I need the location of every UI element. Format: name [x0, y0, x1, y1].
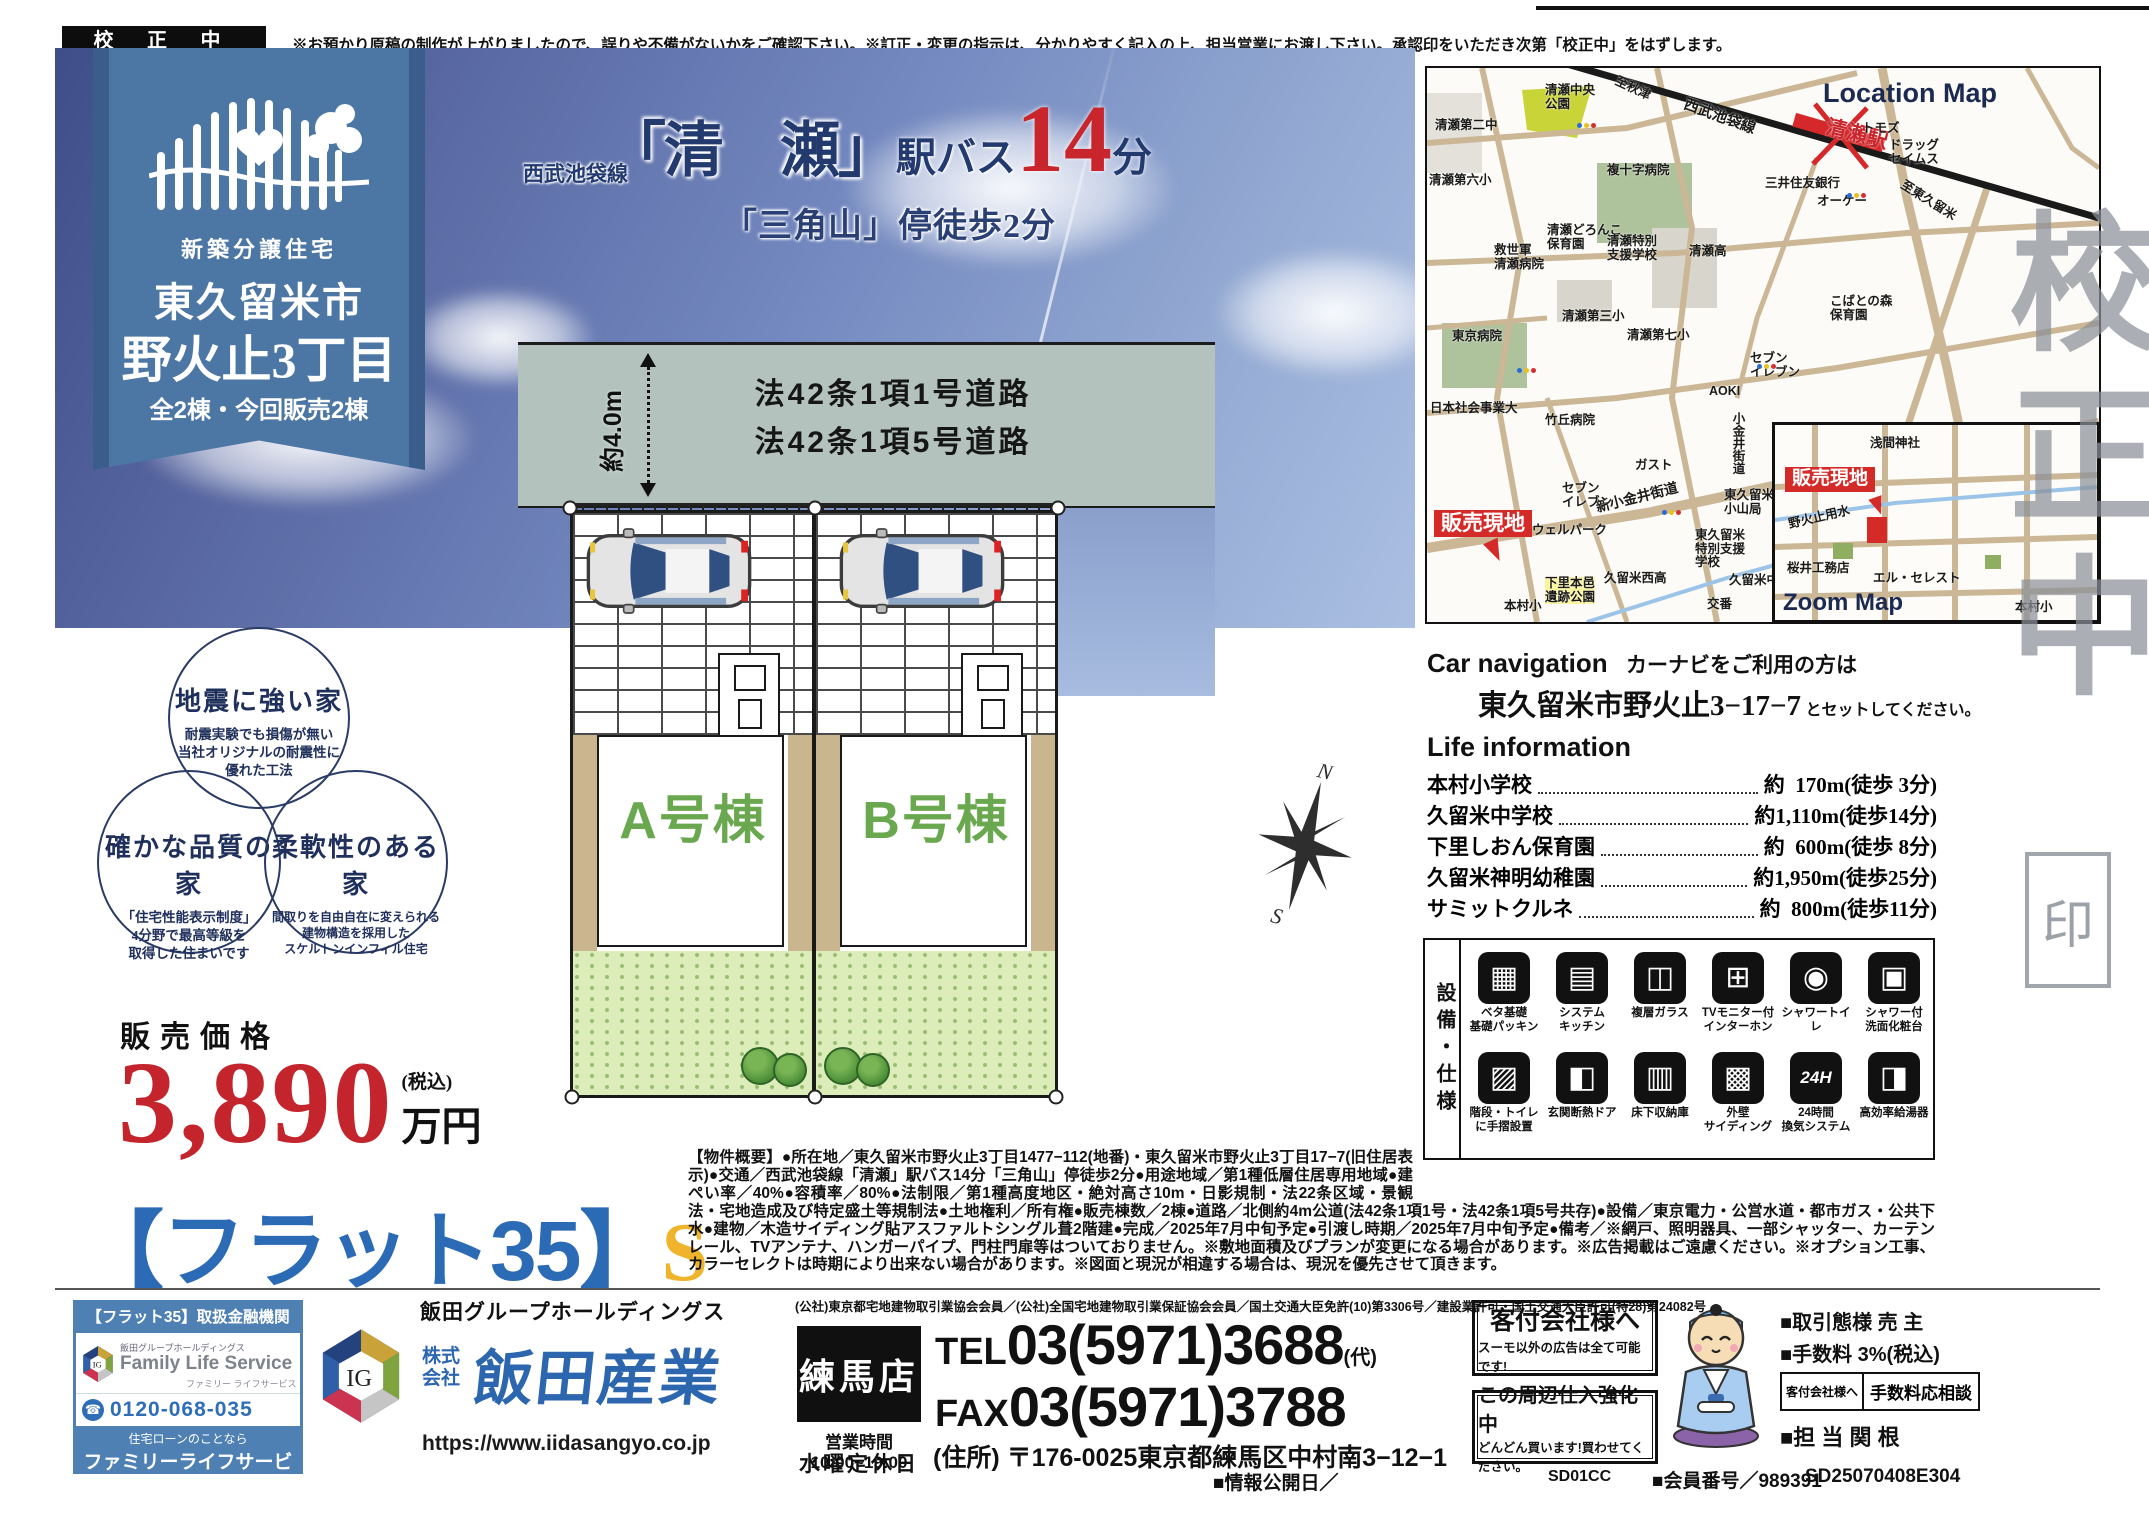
- map-label: 清瀬第二中: [1435, 119, 1498, 133]
- holdings-name: 飯田グループホールディングス: [420, 1296, 725, 1326]
- dotted-leader: [1579, 916, 1753, 918]
- ig-logo-small: IG: [81, 1345, 115, 1383]
- porch-step: [738, 699, 762, 729]
- handrail-icon: ▨: [1478, 1052, 1530, 1104]
- property-overview: 【物件概要】●所在地／東久留米市野火止3丁目1477−112(地番)・東久留米市…: [688, 1149, 1935, 1274]
- kitchen-icon: ▤: [1556, 952, 1608, 1004]
- map-label: 竹丘病院: [1545, 414, 1595, 428]
- headline-suffix: 駅バス: [896, 125, 1016, 183]
- equip-label: 高効率給湯器: [1855, 1107, 1933, 1121]
- life-item-distance: 約1,950m(徒歩25分): [1753, 862, 1937, 892]
- company-prefix: 株式 会社: [422, 1346, 460, 1390]
- store-name-box: 練馬店: [797, 1326, 921, 1422]
- feature-desc: 「住宅性能表示制度」 4分野で最高等級を 取得した住まいです: [99, 909, 279, 964]
- feature-circle-quality: 確かな品質の家 「住宅性能表示制度」 4分野で最高等級を 取得した住まいです: [97, 770, 281, 954]
- map-label: 桜井工務店: [1787, 562, 1850, 576]
- zoom-map-title: Zoom Map: [1783, 589, 1903, 617]
- intercom-icon: ⊞: [1712, 952, 1764, 1004]
- porch-step: [981, 699, 1005, 729]
- company-name: 飯田産業: [469, 1330, 726, 1417]
- shower-toilet-icon: ◉: [1790, 952, 1842, 1004]
- life-item-distance: 約 600m(徒歩 8分): [1764, 831, 1937, 861]
- store-closed: 水曜定休日: [775, 1448, 943, 1478]
- equip-label: 複層ガラス: [1621, 1007, 1699, 1021]
- map-label: ウェルパーク: [1532, 524, 1607, 538]
- equipment-side-label: 設備・仕様: [1425, 940, 1461, 1158]
- vanity-icon: ▣: [1868, 952, 1920, 1004]
- lot-a-garden: [573, 951, 812, 1095]
- equip-label: ベタ基礎 基礎パッキン: [1465, 1007, 1543, 1035]
- life-item-name: 久留米中学校: [1427, 800, 1553, 830]
- tel-note: (代): [1344, 1341, 1377, 1370]
- lot-b-wall-left: [816, 735, 840, 951]
- fee-table: 客付会社様へ 手数料応相談: [1780, 1372, 1980, 1411]
- map-label: オーケー: [1817, 195, 1867, 209]
- deal-type: ■取引態様 売 主: [1780, 1306, 1923, 1335]
- map-label: 清瀬第七小: [1627, 329, 1690, 343]
- feature-title: 確かな品質の家: [99, 827, 279, 901]
- survey-peg: [808, 1090, 823, 1105]
- road-width-label: 約4.0m: [593, 390, 629, 472]
- map-label: 複十字病院: [1607, 164, 1670, 178]
- car-top-view: [585, 527, 753, 615]
- mascot-character: [1668, 1298, 1764, 1448]
- headline-busstop: 「三角山」停徒歩2分: [723, 198, 1056, 247]
- life-item-name: サミットクルネ: [1427, 893, 1573, 923]
- agent-box2-title: この周辺仕入強化中: [1478, 1379, 1652, 1437]
- flyer-page: 校 正 中 ※お預かり原稿の制作が上がりましたので、誤りや不備がないかをご確認下…: [0, 0, 2149, 1517]
- fls-header: 【フラット35】取扱金融機関: [76, 1303, 300, 1333]
- ig-logo: IG: [318, 1326, 404, 1426]
- title-ribbon: 新築分譲住宅 東久留米市 野火止3丁目 全2棟・今回販売2棟: [93, 48, 425, 470]
- life-item-distance: 約1,110m(徒歩14分): [1754, 800, 1937, 830]
- equip-label: システム キッチン: [1543, 1007, 1621, 1035]
- entrance-door-icon: ◧: [1556, 1052, 1608, 1104]
- cloud: [1215, 248, 1415, 378]
- map-label: ガスト: [1635, 459, 1673, 473]
- freedial-icon: ☎: [82, 1399, 104, 1421]
- fee-table-left: 客付会社様へ: [1782, 1374, 1864, 1409]
- fls-note: 住宅ローンのことなら: [76, 1426, 300, 1447]
- porch-step: [734, 665, 766, 691]
- fence-heart-logo: [149, 90, 369, 220]
- lot-a: A号棟: [570, 510, 815, 1098]
- map-label: 浅間神社: [1870, 437, 1920, 451]
- ribbon-town: 野火止3丁目: [93, 320, 425, 392]
- svg-text:IG: IG: [346, 1365, 372, 1392]
- tel-row: TEL 03(5971)3688 (代): [935, 1312, 1377, 1377]
- compass-n: N: [1314, 757, 1337, 785]
- fls-phone: 0120-068-035: [110, 1398, 253, 1422]
- flat35-name: 【フラット35】: [80, 1184, 661, 1305]
- fax-number: 03(5971)3788: [1009, 1374, 1346, 1439]
- traffic-signal: [1757, 364, 1762, 369]
- foundation-icon: ▦: [1478, 952, 1530, 1004]
- life-item-name: 久留米神明幼稚園: [1427, 862, 1595, 892]
- life-information-list: 本村小学校 約 170m(徒歩 3分) 久留米中学校 約1,110m(徒歩14分…: [1427, 768, 1937, 923]
- life-item-name: 下里しおん保育園: [1427, 831, 1595, 861]
- fls-brand: Family Life Service: [120, 1353, 292, 1375]
- survey-peg: [563, 501, 578, 516]
- water-heater-icon: ◨: [1868, 1052, 1920, 1104]
- map-label: 日本社会事業大: [1430, 402, 1518, 416]
- info-date: ■情報公開日／: [1213, 1468, 1338, 1495]
- survey-peg: [1051, 501, 1066, 516]
- location-map-title: Location Map: [1823, 78, 1997, 109]
- map-label: 久留米西高: [1604, 572, 1667, 586]
- feature-title: 地震に強い家: [170, 681, 348, 718]
- family-life-service-box: 【フラット35】取扱金融機関 IG 飯田グループホールディングス Family …: [73, 1300, 303, 1474]
- site-flag: 販売現地: [1434, 510, 1532, 537]
- survey-peg: [1049, 1090, 1064, 1105]
- map-label: 下里本邑 遺跡公園: [1545, 577, 1595, 604]
- arrow-down: [640, 483, 656, 497]
- equip-label: シャワートイレ: [1777, 1007, 1855, 1035]
- lot-b: B号棟: [813, 510, 1058, 1098]
- ventilation-icon: 24H: [1790, 1052, 1842, 1104]
- ribbon-tagline: 新築分譲住宅: [93, 232, 425, 264]
- map-label: セブン イレブン: [1562, 482, 1612, 509]
- porch-step: [977, 665, 1009, 691]
- map-label: 東久留米 小山局: [1724, 489, 1774, 516]
- member-number: ■会員番号／989391: [1652, 1466, 1822, 1493]
- car-navigation-sub: カーナビをご利用の方は: [1626, 654, 1857, 677]
- dotted-leader: [1601, 885, 1747, 887]
- svg-text:IG: IG: [93, 1359, 102, 1369]
- map-label: 東京病院: [1452, 330, 1502, 344]
- life-item-name: 本村小学校: [1427, 769, 1532, 799]
- flat35-logo: 【フラット35】 S: [80, 1184, 708, 1305]
- survey-peg: [808, 501, 823, 516]
- compass-s: S: [1268, 902, 1285, 929]
- feature-circle-flex: 柔軟性のある家 間取りを自由自在に変えられる 建物構造を採用した スケルトンイン…: [264, 770, 448, 954]
- fax-row: FAX 03(5971)3788: [935, 1374, 1346, 1439]
- lot-b-porch: [961, 653, 1023, 737]
- equip-label: 床下収納庫: [1621, 1107, 1699, 1121]
- headline-minutes: 14: [1016, 96, 1112, 182]
- code-2: SD25070408E304: [1805, 1466, 1960, 1488]
- equip-label: TVモニター付 インターホン: [1699, 1007, 1777, 1035]
- life-item-distance: 約 800m(徒歩11分): [1760, 893, 1937, 923]
- map-label: 清瀬特別 支援学校: [1607, 235, 1657, 262]
- map-label: 東久留米 特別支援 学校: [1695, 529, 1745, 570]
- compass-rose: N S: [1226, 750, 1383, 942]
- road-band: 法42条1項1号道路 法42条1項5号道路 約4.0m: [518, 342, 1215, 508]
- dotted-leader: [1538, 792, 1758, 794]
- life-item: 久留米神明幼稚園 約1,950m(徒歩25分): [1427, 861, 1937, 892]
- traffic-signal: [1577, 123, 1582, 128]
- car-navigation-title: Car navigation: [1427, 648, 1608, 678]
- life-item: 本村小学校 約 170m(徒歩 3分): [1427, 768, 1937, 799]
- headline-station: 「清 瀬」: [606, 102, 896, 189]
- agent-box-2: この周辺仕入強化中 どんどん買います!買わせてください。: [1472, 1390, 1658, 1464]
- fax-label: FAX: [935, 1393, 1009, 1436]
- tree: [856, 1053, 890, 1087]
- map-label: こばとの森 保育園: [1830, 295, 1892, 322]
- tel-number: 03(5971)3688: [1007, 1312, 1344, 1377]
- company-url: https://www.iidasangyo.co.jp: [422, 1432, 711, 1456]
- staff-name: ■担 当 関 根: [1780, 1420, 1900, 1452]
- map-label: 清瀬第三小: [1562, 310, 1625, 324]
- life-item: 久留米中学校 約1,110m(徒歩14分): [1427, 799, 1937, 830]
- headline-minutes-unit: 分: [1112, 125, 1152, 183]
- floor-storage-icon: ▥: [1634, 1052, 1686, 1104]
- map-label: AOKI: [1709, 385, 1740, 399]
- price-row: 3,890 (税込) 万円: [118, 1044, 482, 1162]
- top-rule: [1536, 6, 2149, 10]
- lot-a-porch: [718, 653, 780, 737]
- map-label: 清瀬高: [1689, 245, 1727, 259]
- traffic-signal: [1662, 510, 1667, 515]
- footer-rule: [55, 1288, 2100, 1290]
- price-amount: 3,890: [118, 1044, 394, 1162]
- map-label: ドラッグ セイムス: [1889, 139, 1939, 166]
- lot-a-label: A号棟: [598, 778, 788, 853]
- lot-a-wall-left: [573, 735, 597, 951]
- traffic-signal: [1847, 193, 1852, 198]
- equip-label: 玄関断熱ドア: [1543, 1107, 1621, 1121]
- life-item-distance: 約 170m(徒歩 3分): [1764, 769, 1937, 799]
- fls-name-jp: ファミリーライフサービス: [76, 1447, 300, 1501]
- map-label: 救世軍 清瀬病院: [1494, 244, 1544, 271]
- life-item: サミットクルネ 約 800m(徒歩11分): [1427, 892, 1937, 923]
- dimension-line: [647, 367, 650, 483]
- equipment-box: 設備・仕様 ▦ベタ基礎 基礎パッキン ▤システム キッチン ◫複層ガラス ⊞TV…: [1423, 938, 1935, 1160]
- map-label: 本村小: [1504, 600, 1542, 614]
- fls-brand-sub: ファミリー ライフサービス: [186, 1377, 297, 1390]
- headline-row: 「清 瀬」 駅バス 14 分: [606, 96, 1152, 189]
- survey-peg: [565, 1090, 580, 1105]
- agent-box1-title: 客付会社様へ: [1490, 1301, 1640, 1337]
- dotted-leader: [1601, 854, 1758, 856]
- equip-label: シャワー付 洗面化粧台: [1855, 1007, 1933, 1035]
- map-label: 清瀬第六小: [1429, 174, 1492, 188]
- agent-box1-sub: スーモ以外の広告は全て可能です!: [1478, 1337, 1652, 1375]
- equip-label: 階段・トイレ に手摺設置: [1465, 1107, 1543, 1135]
- siding-icon: ▩: [1712, 1052, 1764, 1104]
- price-tax-note: (税込): [402, 1067, 453, 1094]
- proof-watermark: 校正中: [1995, 205, 2145, 775]
- fee-table-right: 手数料応相談: [1864, 1374, 1978, 1409]
- map-label: 清瀬中央 公園: [1545, 84, 1595, 111]
- life-information-title: Life information: [1427, 732, 1631, 763]
- road-law-2: 法42条1項5号道路: [693, 421, 1093, 465]
- car-navigation-address: 東久留米市野火止3−17−7 とセットしてください。: [1478, 682, 1981, 724]
- lot-b-wall-right: [1031, 735, 1055, 951]
- approval-seal-box: 印: [2025, 852, 2111, 988]
- car-top-view: [838, 527, 1006, 615]
- ribbon-units: 全2棟・今回販売2棟: [93, 390, 425, 425]
- zoom-site-flag: 販売現地: [1785, 467, 1875, 492]
- tel-label: TEL: [935, 1331, 1007, 1374]
- dotted-leader: [1559, 823, 1748, 825]
- feature-title: 柔軟性のある家: [266, 827, 446, 901]
- nav-address: 東久留米市野火止3−17−7: [1478, 690, 1801, 722]
- feature-desc: 間取りを自由自在に変えられる 建物構造を採用した スケルトンインフィル住宅: [266, 909, 446, 958]
- fee-line: ■手数料 3%(税込): [1780, 1338, 1940, 1367]
- lot-a-wall-right: [788, 735, 812, 951]
- life-item: 下里しおん保育園 約 600m(徒歩 8分): [1427, 830, 1937, 861]
- tree: [773, 1053, 807, 1087]
- map-label: エル・セレスト: [1873, 572, 1961, 586]
- map-label: 交番: [1707, 598, 1732, 612]
- nav-address-suffix: とセットしてください。: [1806, 702, 1981, 719]
- map-label: 小金井街道: [1730, 412, 1744, 475]
- zoom-site-marker: [1867, 517, 1887, 543]
- lot-b-label: B号棟: [841, 778, 1031, 853]
- road-law-1: 法42条1項1号道路: [693, 373, 1093, 417]
- store-address: (住所) 〒176-0025東京都練馬区中村南3−12−1: [933, 1438, 1447, 1474]
- sky-patch: [1058, 506, 1215, 696]
- map-label: 三井住友銀行: [1765, 177, 1840, 191]
- code-1: SD01CC: [1548, 1468, 1611, 1486]
- agent-box-1: 客付会社様へ スーモ以外の広告は全て可能です!: [1472, 1300, 1658, 1376]
- glass-icon: ◫: [1634, 952, 1686, 1004]
- traffic-signal: [1517, 368, 1522, 373]
- car-navigation: Car navigation カーナビをご利用の方は: [1427, 648, 1857, 679]
- price-unit: 万円: [402, 1094, 482, 1152]
- map-label: トモズ: [1862, 122, 1900, 136]
- equip-label: 外壁 サイディング: [1699, 1107, 1777, 1135]
- lot-b-garden: [816, 951, 1055, 1095]
- arrow-up: [640, 353, 656, 367]
- equip-label: 24時間 換気システム: [1777, 1107, 1855, 1135]
